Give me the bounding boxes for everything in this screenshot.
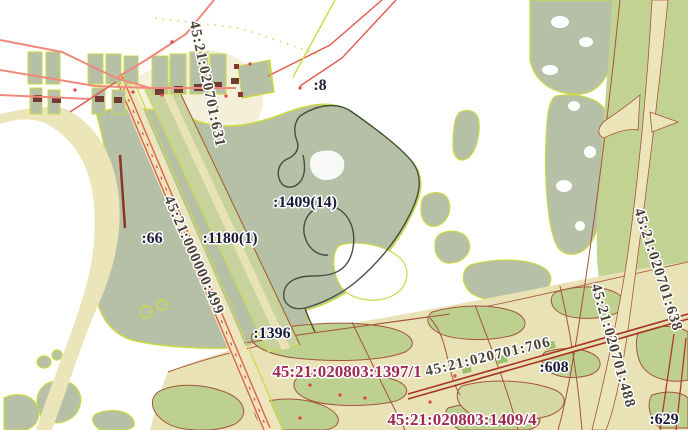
parcel-label-1396[interactable]: :1396 (253, 325, 290, 342)
parcel-label-1180[interactable]: :1180(1) (202, 230, 257, 247)
parcel-label-1409[interactable]: :1409(14) (273, 194, 337, 211)
parcel-label-629[interactable]: :629 (649, 411, 678, 428)
parcel-label-66[interactable]: :66 (141, 230, 162, 247)
parcel-label-1397-1[interactable]: 45:21:020803:1397/1 (272, 362, 421, 381)
parcel-label-1409-4[interactable]: 45:21:020803:1409/4 (387, 410, 537, 429)
map-canvas[interactable]: 45:21:020701:631 45:21:000000:499 45:21:… (0, 0, 688, 430)
cadastral-map-svg[interactable]: 45:21:020701:631 45:21:000000:499 45:21:… (0, 0, 688, 430)
parcel-label-608[interactable]: :608 (539, 359, 568, 376)
parcel-label-8[interactable]: :8 (313, 77, 326, 94)
